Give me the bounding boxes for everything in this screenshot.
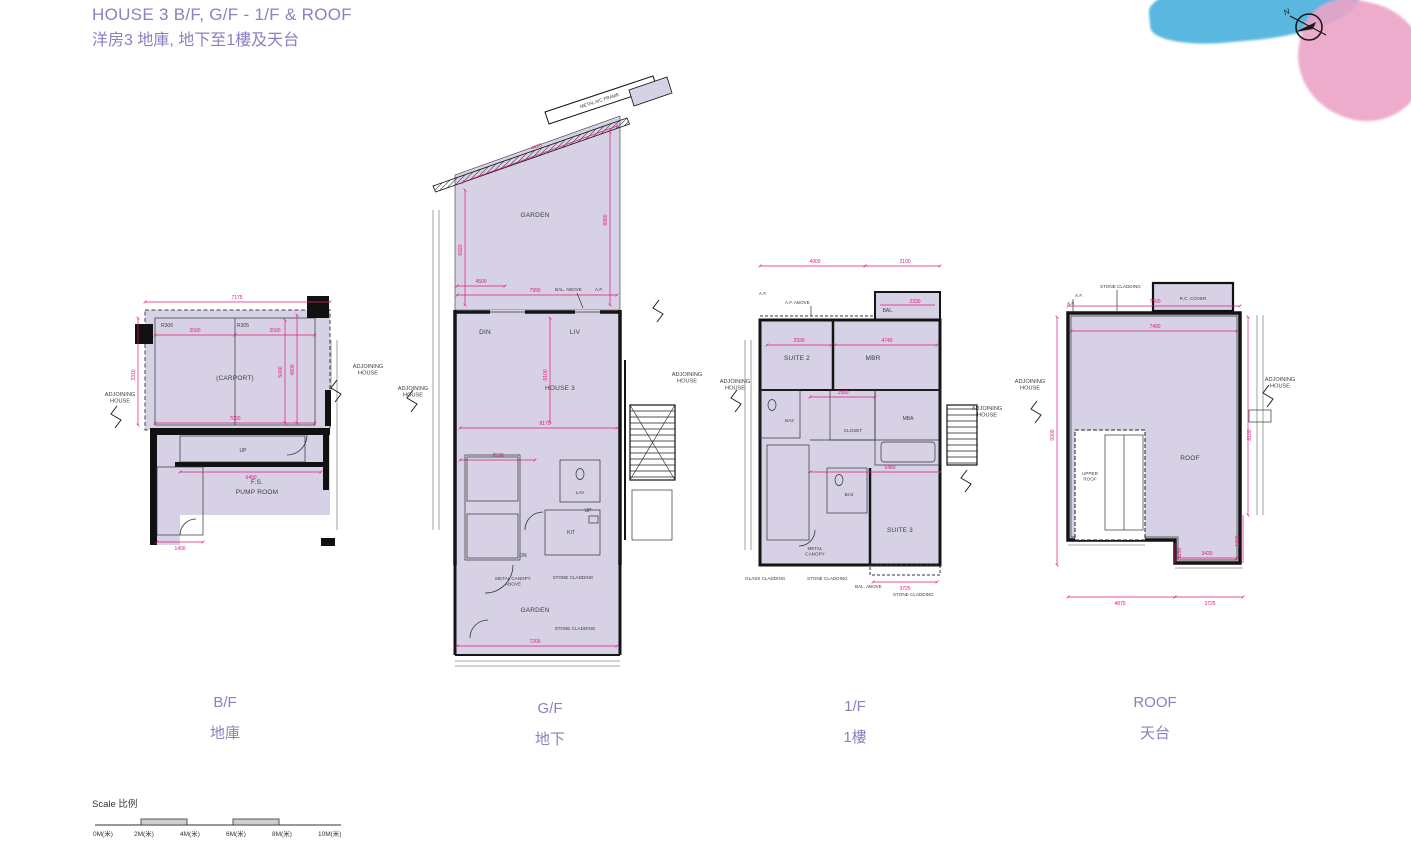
room-label-kit: KIT	[567, 530, 575, 536]
dim-gf-bottom: 7200	[529, 639, 540, 645]
dim-roof-b3: 3420	[1201, 551, 1212, 557]
scale-tick-8: 8M(米)	[272, 829, 292, 838]
gf-stone3-label: STONE CLADDING	[555, 626, 596, 631]
room-label-closet: CLOSET	[844, 428, 863, 433]
room-label-pump-room: PUMP ROOM	[236, 489, 279, 496]
north-letter: N	[1282, 7, 1291, 18]
dim-ff-r2: 4740	[881, 338, 892, 344]
room-label-ba2: BA2	[785, 418, 794, 423]
dim-ff-s1: 5480	[884, 465, 895, 471]
dim-bf-right-v2: 4800	[290, 364, 296, 375]
gf-bal-above-label: BAL. ABOVE	[555, 287, 582, 292]
scale-tick-4: 4M(米)	[180, 829, 200, 838]
dim-bf-top: 7175	[231, 295, 242, 301]
ff-af-label: A.F.	[759, 291, 767, 296]
gf-af2-label: A.F.	[595, 287, 603, 292]
caption-ff-zh: 1樓	[785, 726, 925, 747]
ff-glass-label: GLASS CLADDING	[745, 576, 786, 581]
room-label-mbr: MBR	[865, 355, 880, 362]
caption-roof-zh: 天台	[1085, 722, 1225, 743]
room-label-din: DIN	[479, 329, 491, 336]
caption-roof: ROOF	[1085, 694, 1225, 711]
caption-ff: 1/F	[785, 698, 925, 715]
caption-gf: G/F	[480, 700, 620, 717]
adjoining-house-label-right: ADJOININGHOUSE	[353, 364, 383, 377]
ff-stone1-label: STONE CLADDING	[807, 576, 848, 581]
room-label-ba3: BA3	[845, 492, 854, 497]
dim-roof-s1: 1150	[1177, 547, 1183, 558]
dim-roof-left-v: 5000	[1050, 429, 1056, 440]
floor-plan-page: HOUSE 3 B/F, G/F - 1/F & ROOF 洋房3 地庫, 地下…	[0, 0, 1411, 842]
dim-gf-g1: 4500	[475, 279, 486, 285]
room-label-house3: HOUSE 3	[545, 385, 575, 392]
dim-bf-mid: 7000	[229, 416, 240, 422]
dim-roof-b1: 4875	[1114, 601, 1125, 607]
room-label-roof: ROOF	[1180, 455, 1200, 462]
room-label-suite2: SUITE 2	[784, 355, 810, 362]
dim-bf-low: 6400	[245, 475, 256, 481]
gf-plan-drawing: METAL A/C FRAME GARDEN 6920 8980 4420 79…	[395, 60, 715, 710]
dim-roof-b2: 3725	[1204, 601, 1215, 607]
scale-tick-6: 6M(米)	[226, 829, 246, 838]
roof-af1-label: A.F.	[1075, 293, 1083, 298]
gf-stone2-label: STONE CLADDING	[553, 575, 594, 580]
adjoining-house-label-roof-left: ADJOININGHOUSE	[1015, 379, 1045, 392]
ff-af-above-label: A.F. ABOVE	[785, 300, 810, 305]
scale-bar: Scale 比例 0M(米) 2M(米) 4M(米) 6M(米) 8M(米) 1…	[92, 796, 354, 842]
stair-up-label: UP	[240, 448, 248, 454]
north-arrow-icon: N	[1282, 2, 1336, 56]
scale-tick-0: 0M(米)	[93, 829, 113, 838]
dim-roof-inner: 7400	[1149, 324, 1160, 330]
dim-bf-stall-right: 2500	[269, 328, 280, 334]
dim-gf-right-v: 8980	[603, 214, 609, 225]
dim-ff-top1: 4900	[809, 259, 820, 265]
dim-gf-b1: 2530	[492, 453, 503, 459]
room-label-lav: LAV	[576, 490, 585, 495]
dim-gf-house-v: 9100	[543, 369, 549, 380]
dim-gf-g2: 7990	[529, 288, 540, 294]
roof-af2-label: A.F.	[1067, 301, 1075, 306]
scale-tick-10: 10M(米)	[318, 829, 341, 838]
dim-ff-bal: 2330	[909, 299, 920, 305]
bf-plan-drawing: R306 R305 (CARPORT) UP F.S. PUMP ROOM AD…	[85, 280, 395, 610]
dim-ff-m1: 1500	[837, 390, 848, 396]
room-label-bal: BAL.	[883, 308, 894, 314]
caption-bf-zh: 地庫	[155, 722, 295, 743]
roof-stone-label: STONE CLADDING	[1100, 284, 1141, 289]
scale-bar-label: Scale 比例	[92, 796, 354, 810]
scale-tick-2: 2M(米)	[134, 829, 154, 838]
scale-bar-drawing: 0M(米) 2M(米) 4M(米) 6M(米) 8M(米) 10M(米)	[92, 812, 354, 842]
dim-bf-bottom: 1400	[174, 546, 185, 552]
adjoining-house-label-gf-left: ADJOININGHOUSE	[398, 386, 428, 399]
dim-gf-left-v: 6920	[458, 244, 464, 255]
dim-roof-right-v: 8100	[1247, 429, 1253, 440]
dim-roof-top: 7500	[1149, 299, 1160, 305]
stair-dn-label: DN	[519, 553, 527, 559]
room-label-suite3: SUITE 3	[887, 527, 913, 534]
room-label-stall-right: R305	[237, 323, 249, 329]
adjoining-house-label-roof-right: ADJOININGHOUSE	[1265, 377, 1295, 390]
ff-stone2-label: STONE CLADDING	[893, 592, 934, 597]
room-label-mba: MBA	[903, 416, 915, 422]
dim-bf-stall-left: 2500	[189, 328, 200, 334]
stair-up-label-gf: UP	[585, 508, 593, 514]
room-label-garden-bottom: GARDEN	[520, 607, 549, 614]
ff-plan-drawing: BAL. 2330 4900 2100 A.F. ABOVE A.F. SUIT…	[715, 250, 1015, 615]
ff-bal-above-label: BAL. ABOVE	[855, 584, 882, 589]
caption-gf-zh: 地下	[480, 728, 620, 749]
adjoining-house-label-left: ADJOININGHOUSE	[105, 392, 135, 405]
rc-cover-label: R.C. COVER	[1180, 296, 1207, 301]
room-label-upper-roof: UPPERROOF	[1082, 471, 1099, 482]
dim-bf-right-v1: 5000	[278, 366, 284, 377]
room-label-liv: LIV	[570, 329, 581, 336]
ff-canopy-label: METALCANOPY	[805, 546, 824, 557]
adjoining-house-label-ff-right: ADJOININGHOUSE	[972, 406, 1002, 419]
adjoining-house-label-ff-left: ADJOININGHOUSE	[720, 379, 750, 392]
room-label-garden-top: GARDEN	[520, 212, 549, 219]
dim-gf-house-h: 8170	[539, 421, 550, 427]
room-label-stall-left: R306	[161, 323, 173, 329]
dim-bf-left-v: 3310	[131, 369, 137, 380]
caption-bf: B/F	[155, 694, 295, 711]
dim-roof-s2: 1700	[1235, 535, 1241, 546]
dim-ff-top2: 2100	[899, 259, 910, 265]
page-title-zh: 洋房3 地庫, 地下至1樓及天台	[92, 26, 299, 50]
adjoining-house-label-gf-right: ADJOININGHOUSE	[672, 372, 702, 385]
dim-ff-r1: 2930	[793, 338, 804, 344]
roof-plan-drawing: R.C. COVER STONE CLADDING A.F. 7500 7400…	[1005, 275, 1305, 620]
page-title: HOUSE 3 B/F, G/F - 1/F & ROOF	[92, 5, 352, 25]
room-label-carport: (CARPORT)	[216, 375, 254, 382]
